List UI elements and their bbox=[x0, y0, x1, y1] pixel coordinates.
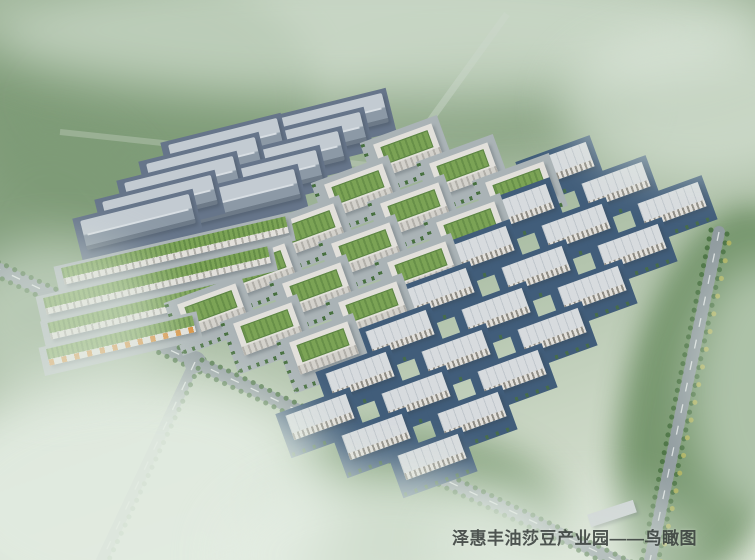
aerial-rendering: 泽惠丰油莎豆产业园——鸟瞰图 bbox=[0, 0, 755, 560]
park-layer bbox=[0, 0, 755, 560]
image-caption: 泽惠丰油莎豆产业园——鸟瞰图 bbox=[452, 524, 697, 549]
